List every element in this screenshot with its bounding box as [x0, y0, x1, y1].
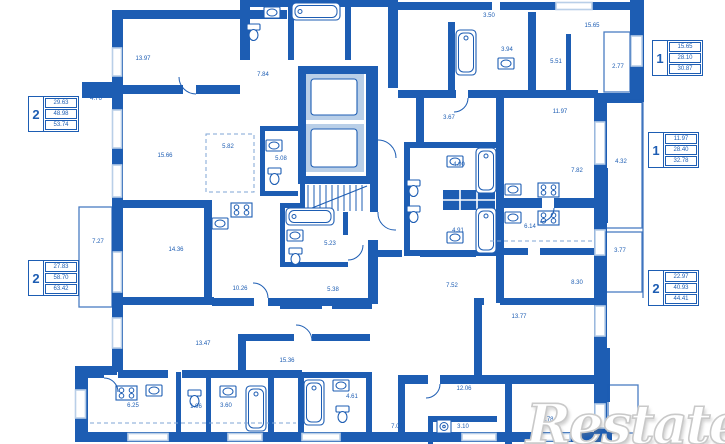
apartment-area-value: 58.70: [45, 273, 77, 283]
stove-icon: [538, 183, 559, 197]
room-area-label: 15.65: [584, 23, 600, 29]
room-area-label: 3.50: [483, 13, 495, 19]
apartment-area-value: 32.78: [665, 156, 697, 166]
room-area-label: 3.10: [457, 424, 469, 430]
door-arc: [378, 140, 396, 158]
room-area-label: 7.52: [446, 283, 458, 289]
apartment-area-value: 27.83: [45, 262, 77, 272]
apartment-info-table: 2 29.63 48.98 53.74: [28, 96, 79, 132]
apartment-rooms-count: 1: [653, 41, 668, 75]
apartment-area-value: 28.40: [665, 145, 697, 155]
room-area-label: 15.66: [157, 153, 173, 159]
wardrobe-outline: [206, 134, 254, 192]
bathtub-icon: [286, 208, 334, 225]
room-area-label: 7.01: [391, 424, 403, 430]
apartment-info-table: 2 22.97 40.93 44.41: [648, 270, 699, 306]
sink-icon: [212, 218, 228, 229]
sink-icon: [220, 386, 236, 397]
door-arc: [296, 325, 312, 341]
room-area-label: 7.27: [92, 239, 104, 245]
room-area-label: 1.96: [190, 404, 202, 410]
room-area-label: 5.82: [222, 144, 234, 150]
room-area-label: 6.14: [524, 224, 536, 230]
apartment-info-table: 2 27.83 58.70 63.42: [28, 260, 79, 296]
room-area-label: 14.36: [168, 247, 184, 253]
stove-icon: [231, 203, 252, 217]
floor-plan-canvas: 13.977.8415.665.825.084.7614.3610.267.27…: [0, 0, 725, 444]
toilet-icon: [336, 406, 349, 423]
apartment-info-table: 1 11.97 28.40 32.78: [648, 132, 699, 168]
bathtub-icon: [304, 380, 324, 425]
balcony-outline: [606, 232, 642, 292]
room-area-label: 6.25: [127, 403, 139, 409]
apartment-rooms-count: 1: [649, 133, 664, 167]
watermark: Restate: [526, 392, 725, 444]
apartment-rooms-count: 2: [29, 261, 44, 295]
room-area-label: 13.77: [511, 314, 527, 320]
stove-icon: [116, 386, 137, 400]
apartment-info-table: 1 15.65 28.10 30.87: [652, 40, 703, 76]
room-area-label: 12.06: [456, 386, 472, 392]
apartment-area-value: 40.93: [665, 283, 697, 293]
room-area-label: 3.77: [614, 248, 626, 254]
apartment-area-value: 48.98: [45, 109, 77, 119]
sink-icon: [146, 385, 162, 396]
room-area-label: 13.97: [135, 56, 151, 62]
room-area-label: 2.77: [612, 64, 624, 70]
door-arc: [348, 245, 363, 260]
room-area-label: 15.36: [279, 358, 295, 364]
toilet-icon: [268, 168, 281, 185]
bathtub-icon: [476, 208, 496, 253]
room-area-label: 11.97: [553, 109, 568, 115]
sink-icon: [505, 212, 521, 223]
room-area-label: 3.94: [501, 47, 513, 53]
room-area-label: 5.51: [550, 59, 562, 65]
room-area-label: 4.90: [453, 162, 465, 168]
apartment-area-value: 22.97: [665, 272, 697, 282]
room-area-label: 3.67: [443, 115, 455, 121]
bathtub-icon: [292, 3, 340, 20]
sink-icon: [498, 58, 514, 69]
apartment-area-value: 15.65: [669, 42, 701, 52]
washer-icon: [437, 420, 451, 433]
room-area-label: 4.76: [90, 96, 102, 102]
door-arc: [426, 384, 440, 398]
sink-icon: [333, 380, 349, 391]
room-area-label: 5.38: [327, 287, 339, 293]
door-arc: [378, 212, 396, 230]
apartment-area-value: 30.87: [669, 64, 701, 74]
stove-icon: [538, 211, 559, 225]
bathtub-icon: [476, 148, 496, 193]
floor-plan-drawing: 13.977.8415.665.825.084.7614.3610.267.27…: [0, 0, 725, 444]
room-area-label: 13.47: [195, 341, 211, 347]
sink-icon: [266, 140, 282, 151]
room-area-label: 7.82: [571, 168, 583, 174]
apartment-area-value: 44.41: [665, 294, 697, 304]
room-area-label: 3.60: [220, 403, 232, 409]
room-area-label: 4.61: [346, 394, 358, 400]
apartment-area-value: 29.63: [45, 98, 77, 108]
apartment-area-value: 53.74: [45, 120, 77, 130]
apartment-rooms-count: 2: [29, 97, 44, 131]
room-area-label: 4.91: [452, 228, 464, 234]
door-arc: [253, 283, 268, 298]
sink-icon: [264, 7, 280, 18]
room-area-label: 4.32: [615, 159, 627, 165]
room-area-label: 7.84: [257, 72, 269, 78]
bathtub-icon: [456, 30, 476, 75]
room-area-label: 8.30: [571, 280, 583, 286]
room-area-label: 5.08: [275, 156, 287, 162]
bathtub-icon: [246, 386, 266, 431]
room-area-label: 5.23: [324, 241, 336, 247]
balcony-outline: [604, 32, 630, 92]
apartment-rooms-count: 2: [649, 271, 664, 305]
balcony-outline: [79, 207, 112, 307]
sink-icon: [287, 230, 303, 241]
apartment-area-value: 63.42: [45, 284, 77, 294]
sink-icon: [505, 184, 521, 195]
apartment-area-value: 11.97: [665, 134, 697, 144]
room-area-label: 10.26: [232, 286, 248, 292]
door-arc: [454, 98, 468, 112]
elevator-shaft: [306, 74, 364, 172]
apartment-area-value: 28.10: [669, 53, 701, 63]
